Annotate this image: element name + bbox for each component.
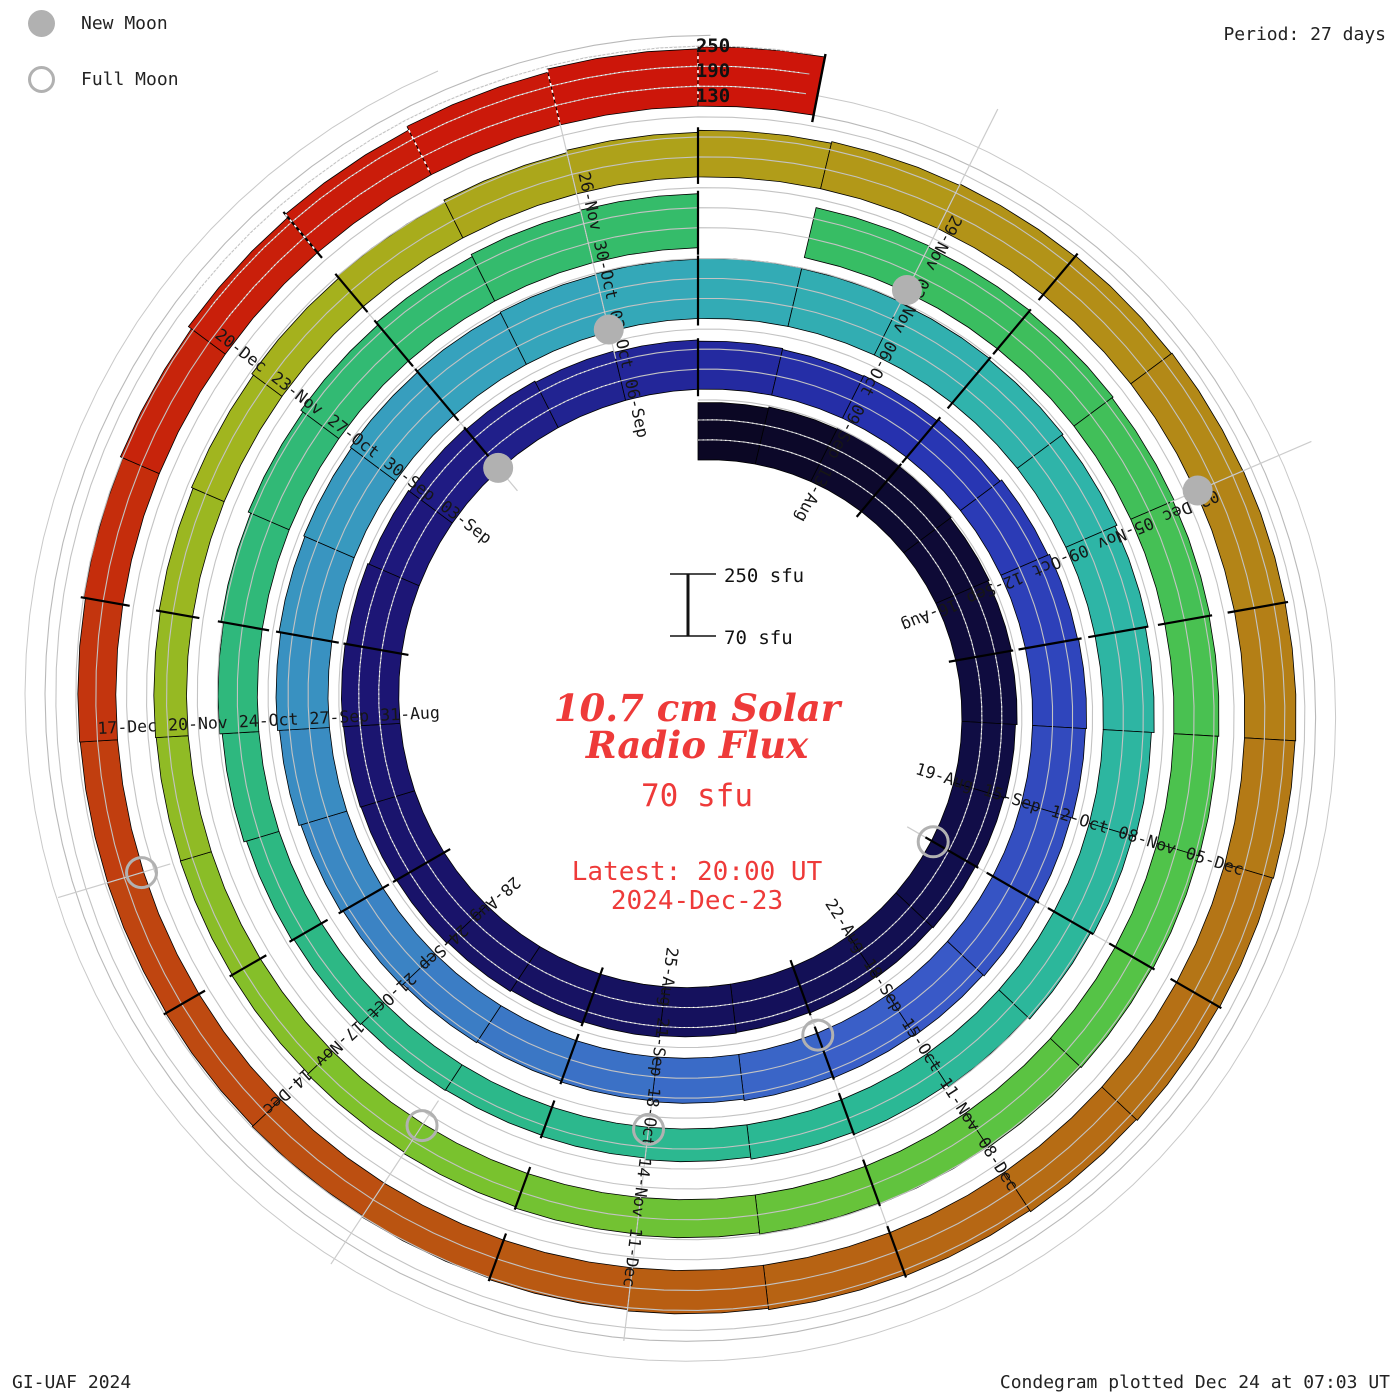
flux-bar-segment bbox=[1025, 639, 1086, 729]
flux-bar-segment bbox=[107, 872, 199, 1013]
flux-bar-segment bbox=[407, 72, 560, 174]
flux-bar-segment bbox=[84, 458, 160, 605]
period-label: Period: 27 days bbox=[1223, 24, 1386, 45]
legend-full-moon: Full Moon bbox=[28, 64, 179, 94]
new-moon-marker bbox=[483, 453, 513, 483]
new-moon-label: New Moon bbox=[81, 13, 168, 34]
flux-bar-segment bbox=[280, 728, 347, 826]
flux-bar-segment bbox=[645, 1125, 751, 1162]
full-moon-icon bbox=[28, 66, 55, 93]
new-moon-marker bbox=[594, 315, 624, 345]
credit-label: GI-UAF 2024 bbox=[12, 1372, 131, 1393]
plot-timestamp: Condegram plotted Dec 24 at 07:03 UT bbox=[1000, 1372, 1390, 1393]
current-flux-value: 70 sfu bbox=[397, 778, 997, 814]
flux-bar-segment bbox=[1165, 616, 1219, 736]
radial-scale-250: 250 bbox=[663, 34, 763, 59]
flux-bar-segment bbox=[1177, 864, 1273, 1008]
full-moon-label: Full Moon bbox=[81, 69, 179, 90]
flux-bar-segment bbox=[739, 1033, 833, 1100]
flux-bar-segment bbox=[221, 513, 289, 629]
flux-scale-bar: 250 sfu 70 sfu bbox=[670, 565, 804, 649]
new-moon-marker bbox=[892, 275, 922, 305]
chart-title-line1: 10.7 cm Solar bbox=[397, 690, 997, 727]
latest-time: Latest: 20:00 UT bbox=[397, 858, 997, 887]
flux-bar-segment bbox=[159, 488, 224, 617]
flux-bar-segment bbox=[515, 1174, 640, 1235]
flux-bar-segment bbox=[747, 1100, 853, 1160]
flux-bar-segment bbox=[1095, 627, 1154, 733]
radial-scale-labels: 250 190 130 bbox=[663, 34, 763, 109]
spiral-date-label: 24-Oct bbox=[238, 710, 298, 732]
spiral-date-label: 17-Dec bbox=[97, 716, 157, 738]
flux-bar-segment bbox=[446, 1065, 553, 1136]
flux-bar-segment bbox=[489, 1240, 632, 1310]
flux-bar-segment bbox=[698, 259, 802, 327]
chart-title-block: 10.7 cm Solar Radio Flux 70 sfu bbox=[397, 690, 997, 814]
moon-legend: New Moon Full Moon bbox=[28, 8, 179, 120]
radial-scale-130: 130 bbox=[663, 84, 763, 109]
scale-bar-bottom-label: 70 sfu bbox=[724, 627, 793, 649]
flux-bar-segment bbox=[222, 732, 279, 842]
spiral-date-label: 27-Sep bbox=[309, 706, 369, 728]
scale-bar-top-label: 250 sfu bbox=[724, 565, 804, 587]
condegram-page: 13-Aug16-Aug19-Aug22-Aug25-Aug28-Aug31-A… bbox=[0, 0, 1400, 1400]
latest-observation-block: Latest: 20:00 UT 2024-Dec-23 bbox=[397, 858, 997, 916]
latest-date: 2024-Dec-23 bbox=[397, 887, 997, 916]
radial-scale-190: 190 bbox=[663, 59, 763, 84]
spiral-date-label: 20-Nov bbox=[168, 713, 228, 735]
flux-bar-segment bbox=[404, 1124, 528, 1207]
new-moon-icon bbox=[28, 10, 55, 37]
flux-bar-segment bbox=[156, 736, 211, 861]
flux-bar-segment bbox=[561, 1041, 657, 1101]
new-moon-marker bbox=[1183, 475, 1213, 505]
legend-new-moon: New Moon bbox=[28, 8, 179, 38]
chart-title-line2: Radio Flux bbox=[397, 727, 997, 764]
